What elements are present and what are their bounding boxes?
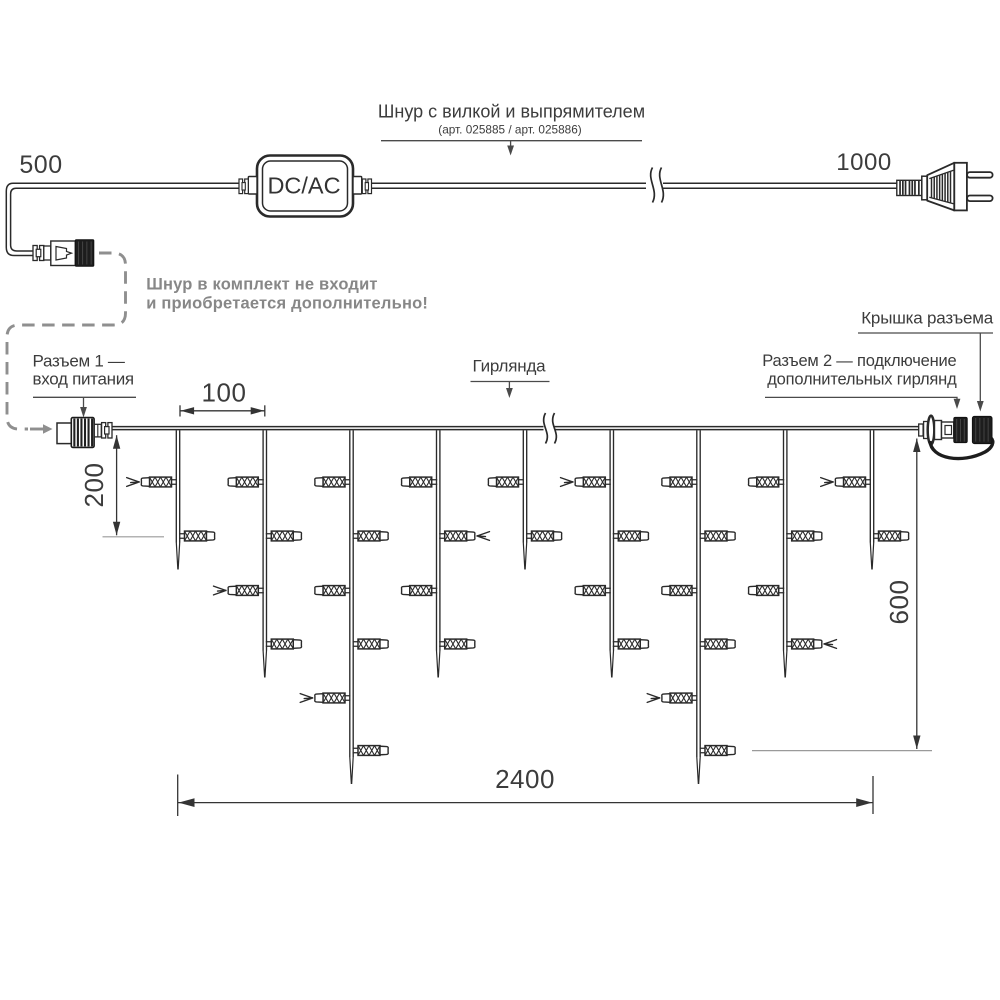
- svg-text:дополнительных гирлянд: дополнительных гирлянд: [767, 371, 957, 389]
- svg-text:200: 200: [79, 463, 109, 508]
- svg-text:Крышка разъема: Крышка разъема: [861, 309, 994, 328]
- svg-text:500: 500: [19, 151, 62, 179]
- svg-text:Гирлянда: Гирлянда: [473, 357, 547, 376]
- svg-text:вход питания: вход питания: [33, 370, 134, 389]
- svg-text:600: 600: [884, 580, 914, 625]
- svg-text:100: 100: [202, 378, 247, 408]
- svg-text:Разъем 1 —: Разъем 1 —: [33, 352, 125, 371]
- svg-text:1000: 1000: [836, 149, 891, 176]
- svg-text:Разъем 2 — подключение: Разъем 2 — подключение: [762, 352, 956, 370]
- svg-text:2400: 2400: [495, 764, 555, 794]
- svg-text:DC/AC: DC/AC: [267, 173, 340, 199]
- svg-text:и приобретается дополнительно!: и приобретается дополнительно!: [146, 295, 428, 313]
- svg-text:Шнур с вилкой и выпрямителем: Шнур с вилкой и выпрямителем: [378, 102, 645, 122]
- svg-text:Шнур в комплект не входит: Шнур в комплект не входит: [146, 276, 378, 294]
- svg-text:(арт. 025885 / арт. 025886): (арт. 025885 / арт. 025886): [438, 123, 582, 137]
